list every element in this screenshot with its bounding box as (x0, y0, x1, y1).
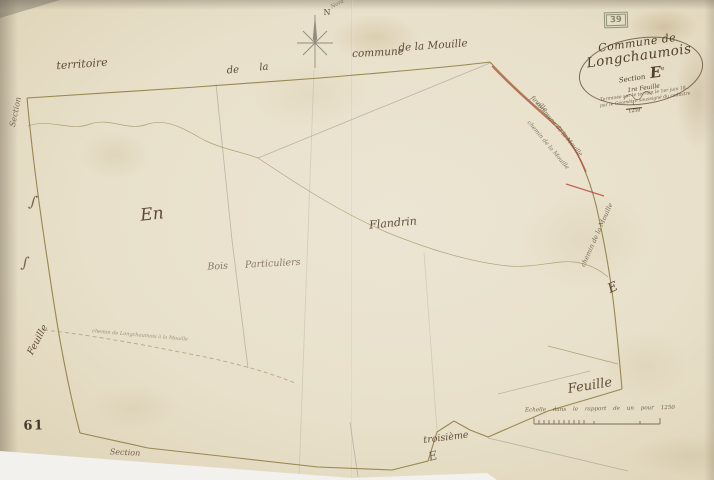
neighbour-label-la: la (259, 63, 269, 74)
cartouche-section-word: Section (618, 73, 645, 85)
compass-north-label: N (324, 9, 331, 17)
scale-bar (534, 418, 660, 424)
construction-line (424, 252, 437, 430)
stream-line (28, 122, 258, 158)
meridian-line (299, 70, 314, 478)
place-label-en: En (139, 205, 164, 224)
neighbour-label-territoire: territoire (56, 57, 108, 72)
sheet-number: 39 (606, 14, 626, 27)
cartouche-section-sup: e (660, 65, 665, 72)
road-line (492, 66, 586, 172)
bottom-section-label: Section (110, 448, 141, 458)
construction-line (488, 438, 628, 471)
construction-line (216, 84, 248, 368)
neighbour-label-commune: commune (352, 46, 404, 59)
scale-fraction: 1 1250 (625, 101, 642, 115)
road-spur (566, 184, 604, 196)
parcel-boundary-left (27, 98, 80, 433)
corner-sheet-number: 61 (23, 419, 44, 432)
neighbour-label-de: de (226, 65, 239, 76)
sheet-number-stamp: 39 (604, 12, 628, 29)
construction-line (258, 63, 490, 158)
paper-sheet: 39 Commune de Longchaumois Section Ee 1r… (0, 0, 714, 480)
compass-star (297, 15, 333, 68)
interior-line (548, 346, 618, 364)
scanned-map-sheet: 39 Commune de Longchaumois Section Ee 1r… (0, 0, 714, 480)
